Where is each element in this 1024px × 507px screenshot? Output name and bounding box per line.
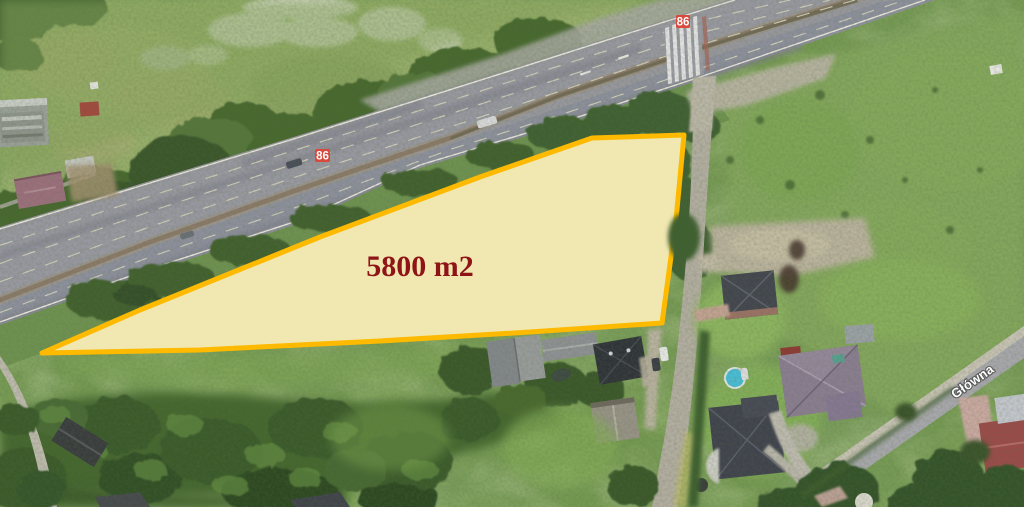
svg-text:5800 m2: 5800 m2 <box>366 250 474 283</box>
svg-text:86: 86 <box>316 151 329 163</box>
svg-text:86: 86 <box>677 17 690 29</box>
